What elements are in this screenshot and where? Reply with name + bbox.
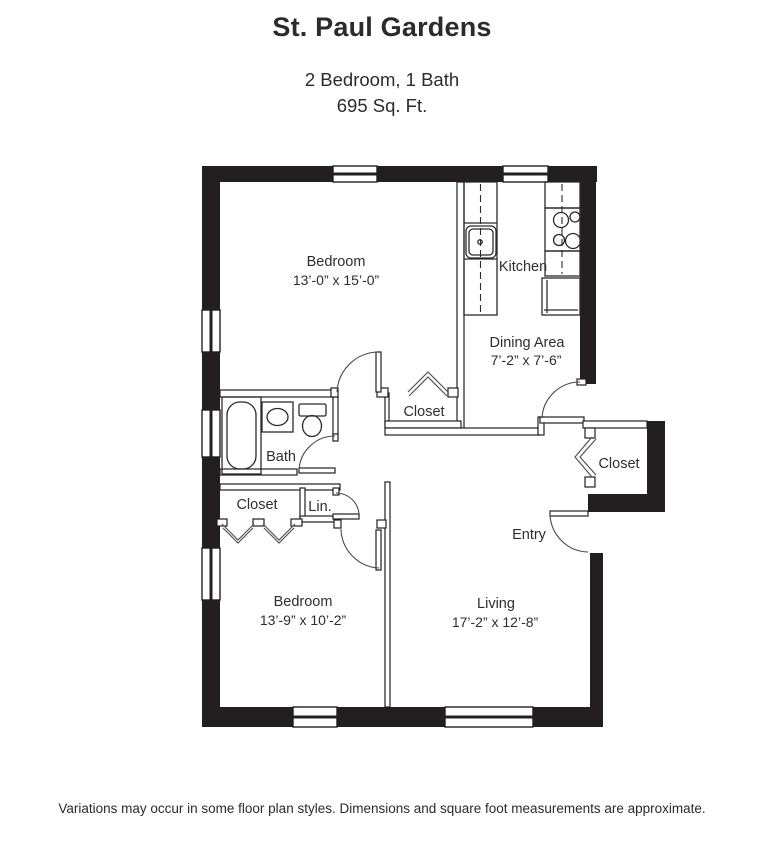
- window: [202, 548, 220, 600]
- wall-segment: [220, 484, 340, 490]
- room-label-entry: Entry: [512, 527, 547, 543]
- room-label-entry-closet: Closet: [598, 456, 639, 472]
- window: [202, 310, 220, 352]
- window: [445, 707, 533, 727]
- wall-segment: [385, 482, 390, 707]
- wall-segment: [300, 488, 305, 520]
- toilet: [299, 404, 326, 437]
- door-swing-entry: [550, 511, 588, 552]
- room-dims-bedroom-1: 13’-0” x 15’-0”: [293, 272, 380, 288]
- wall-segment: [202, 166, 220, 310]
- door-jamb: [217, 519, 227, 526]
- room-label-bedroom-1-closet: Closet: [403, 404, 444, 420]
- wall-segment: [385, 421, 461, 428]
- door-arc: [299, 436, 335, 470]
- room-labels: Bedroom 13’-0” x 15’-0” Kitchen Dining A…: [236, 254, 639, 630]
- wall-segment: [377, 166, 503, 182]
- wall-segment: [385, 428, 540, 435]
- bifold-door-entry-closet: [575, 437, 596, 477]
- wall-segment: [202, 352, 220, 410]
- room-label-bath: Bath: [266, 449, 296, 465]
- window: [293, 707, 337, 727]
- door-arc: [550, 513, 588, 552]
- door-jamb: [585, 428, 595, 438]
- door-jamb: [253, 519, 264, 526]
- stove: [545, 208, 581, 251]
- door-arc: [336, 493, 359, 514]
- wall-segment: [333, 397, 338, 437]
- bathtub: [222, 397, 261, 474]
- wall-segment: [580, 166, 596, 384]
- room-label-dining-area: Dining Area: [490, 335, 566, 351]
- bifold-door-bedroom-1-closet: [408, 372, 448, 396]
- room-dims-living: 17’-2” x 12’-8”: [452, 614, 539, 630]
- door-jamb: [333, 488, 339, 495]
- door-leaf: [333, 514, 359, 519]
- wall-segment: [337, 707, 445, 727]
- wall-segment: [588, 494, 665, 512]
- door-swing-linen: [333, 493, 359, 519]
- counter: [545, 182, 580, 276]
- refrigerator: [542, 278, 580, 315]
- room-label-kitchen: Kitchen: [499, 259, 547, 275]
- room-label-bedroom-2-closet: Closet: [236, 497, 277, 513]
- disclaimer-text: Variations may occur in some floor plan …: [0, 801, 764, 816]
- door-arc: [341, 529, 379, 568]
- kitchen-fixtures: [464, 182, 581, 315]
- door-swing-bedroom-1: [337, 352, 381, 392]
- floor-plan-page: St. Paul Gardens 2 Bedroom, 1 Bath 695 S…: [0, 0, 764, 841]
- room-label-living: Living: [477, 596, 515, 612]
- wall-segment: [202, 707, 293, 727]
- door-swing-bath: [299, 436, 335, 473]
- bathroom-sink: [262, 402, 293, 432]
- door-jamb: [291, 519, 302, 526]
- door-jamb: [585, 477, 595, 487]
- room-label-bedroom-1: Bedroom: [307, 254, 366, 270]
- room-label-linen-closet: Lin.: [308, 499, 331, 515]
- door-jamb: [333, 434, 338, 441]
- door-leaf: [299, 468, 335, 473]
- window: [202, 410, 220, 457]
- wall-segment: [202, 166, 333, 182]
- door-jamb: [448, 388, 458, 397]
- wall-segment: [202, 600, 220, 707]
- door-swing-bedroom-2: [341, 529, 381, 570]
- door-leaf: [550, 511, 588, 516]
- wall-segment: [583, 421, 647, 428]
- door-arc: [337, 352, 378, 392]
- floor-plan-drawing: Bedroom 13’-0” x 15’-0” Kitchen Dining A…: [0, 0, 764, 841]
- window: [333, 166, 377, 182]
- wall-segment: [220, 390, 337, 397]
- door-swing-dining: [542, 382, 580, 418]
- wall-segment: [590, 553, 603, 727]
- exterior-walls: [202, 166, 665, 727]
- door-leaf: [376, 530, 381, 570]
- bifold-door-bedroom-2-closet: [222, 524, 295, 543]
- wall-segment: [202, 457, 220, 548]
- door-leaf: [540, 417, 584, 423]
- door-jamb: [334, 520, 341, 528]
- room-dims-dining-area: 7’-2” x 7’-6”: [491, 352, 562, 368]
- door-jamb: [377, 520, 386, 528]
- door-leaf: [376, 352, 381, 392]
- window: [503, 166, 548, 182]
- room-dims-bedroom-2: 13’-9” x 10’-2”: [260, 612, 347, 628]
- door-arc: [542, 382, 580, 418]
- room-label-bedroom-2: Bedroom: [274, 594, 333, 610]
